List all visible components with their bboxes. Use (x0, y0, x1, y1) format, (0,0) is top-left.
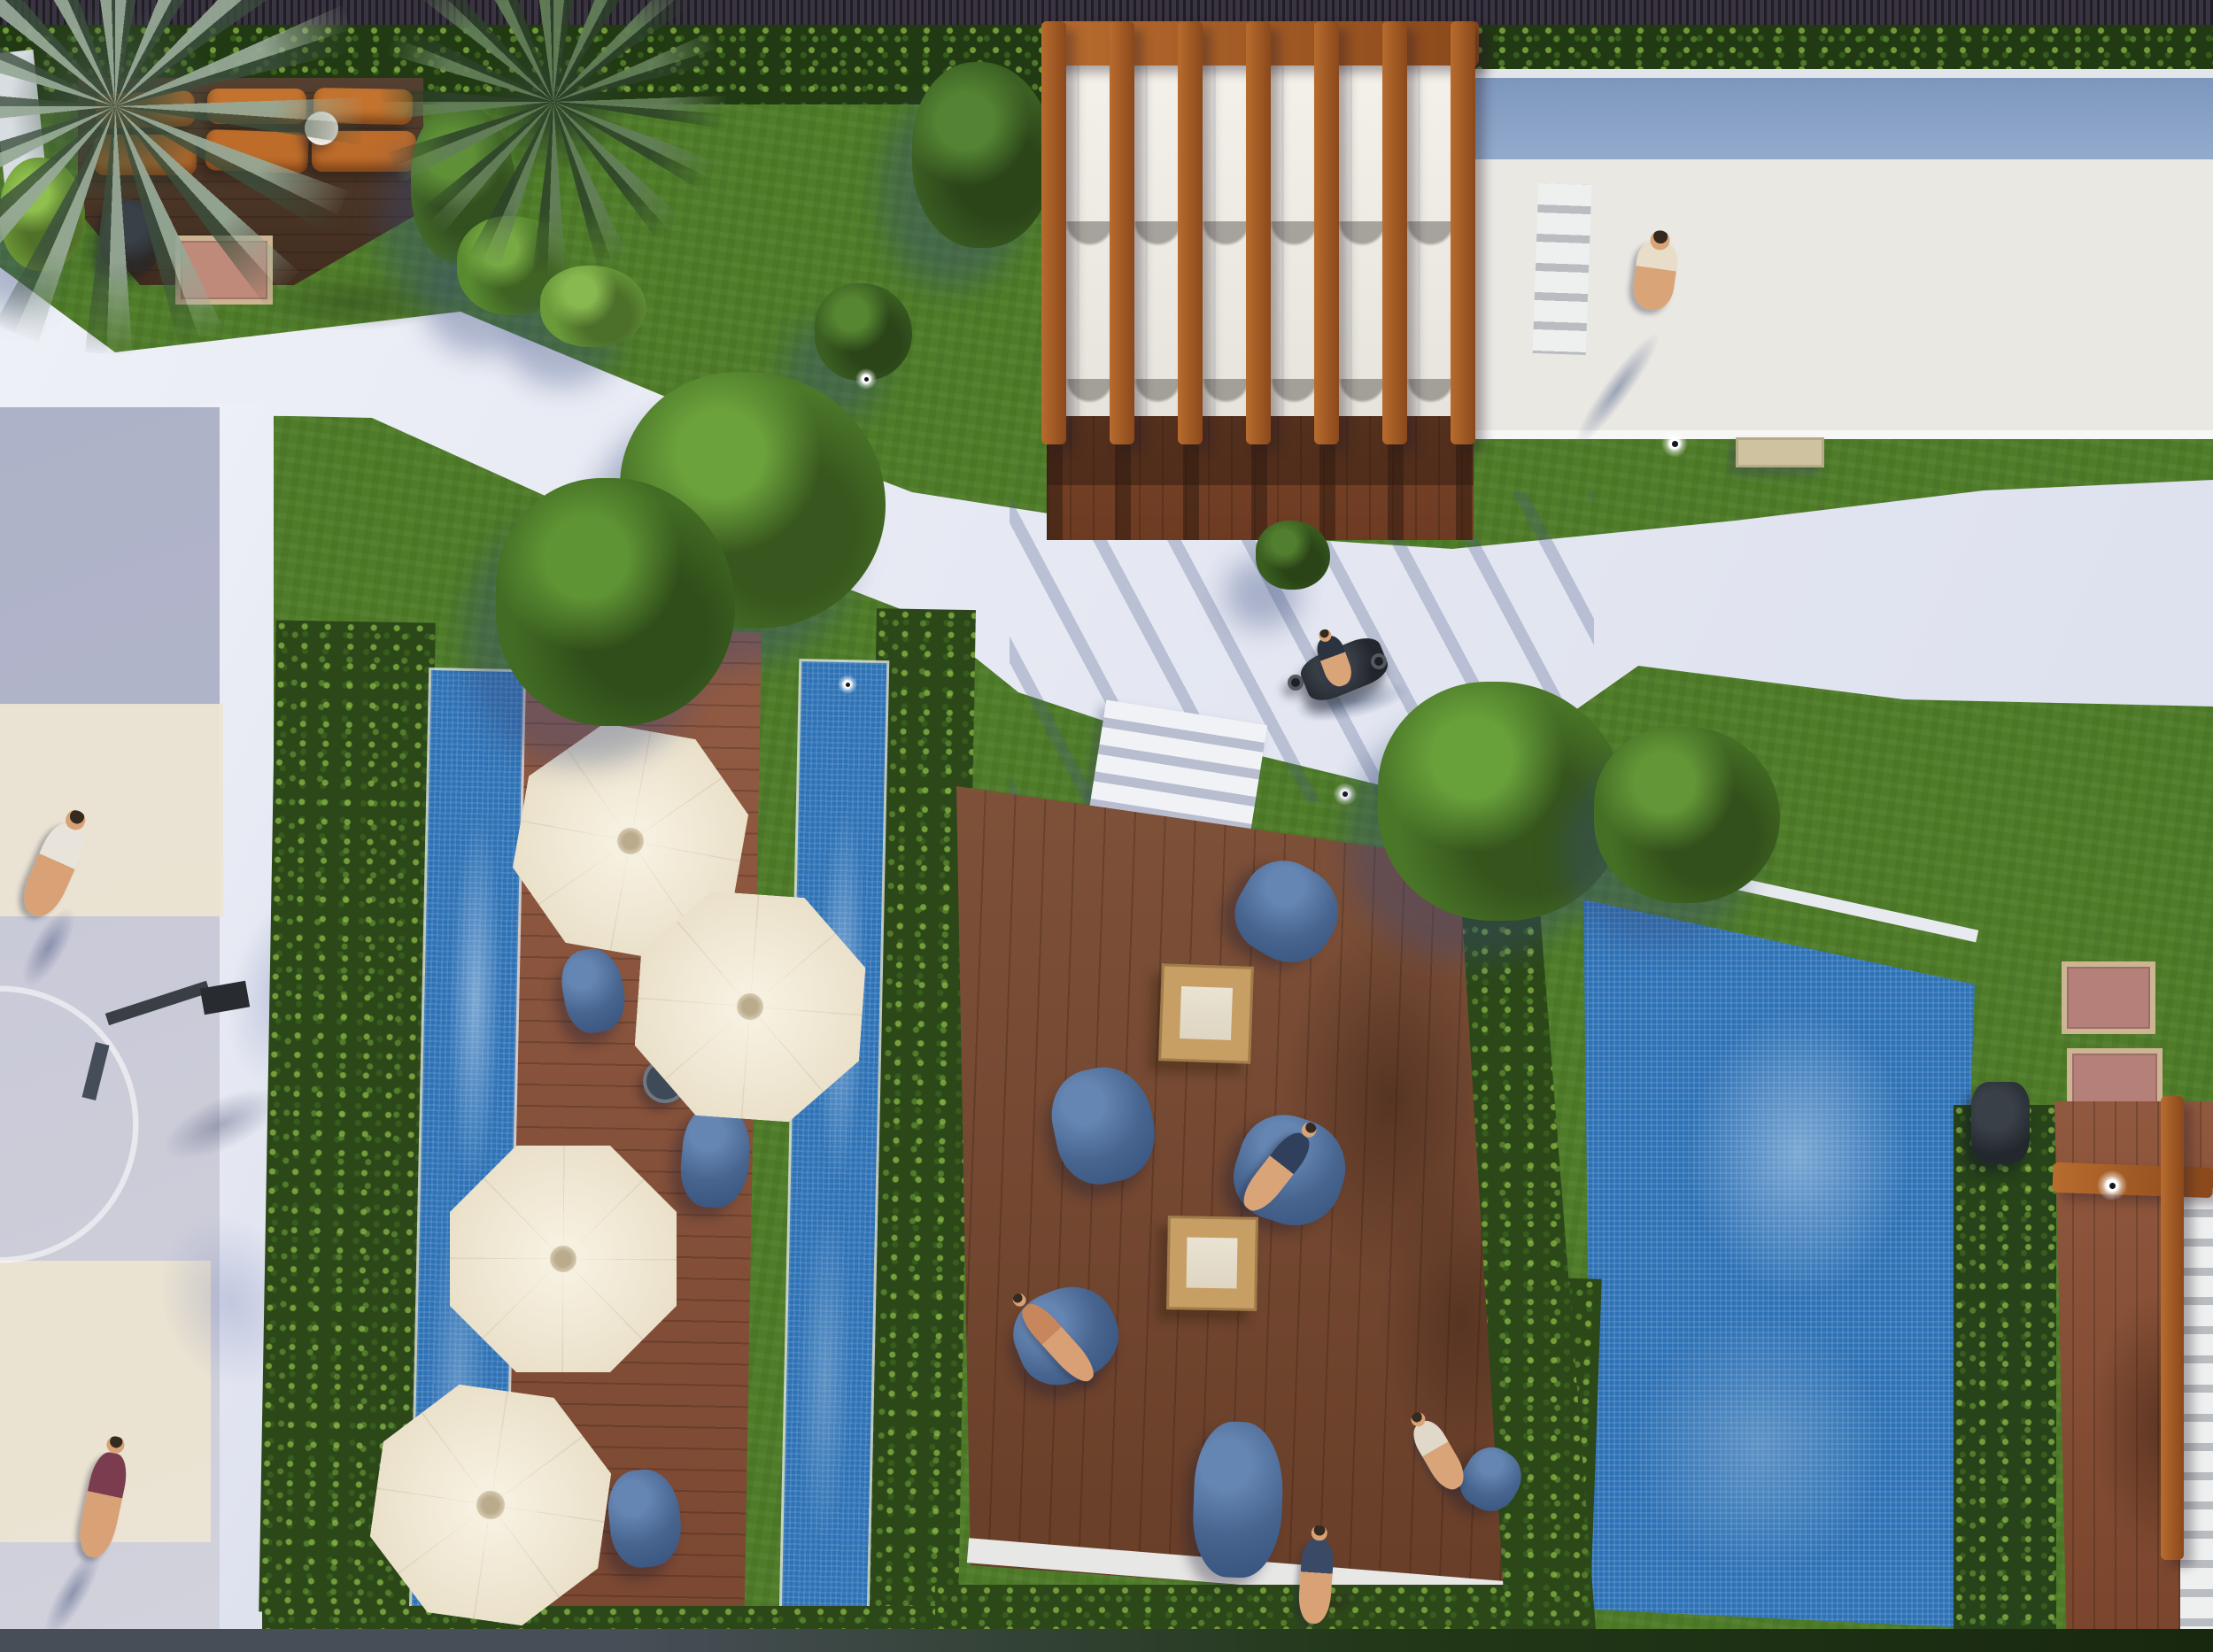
lawn-bench (1736, 437, 1824, 467)
pergola-beam-3 (1178, 21, 1203, 444)
pergola-beam-5 (1314, 21, 1339, 444)
tree-pool-right (1594, 726, 1780, 903)
pergola-br-lamp (2097, 1170, 2127, 1200)
scooter-wheel-front (1371, 653, 1387, 669)
pergola-beam-4 (1246, 21, 1271, 444)
deck-platform-2 (1166, 1216, 1258, 1311)
pergola-beam-6 (1382, 21, 1407, 444)
bush-mid-lawn (815, 283, 912, 381)
pergola-br-white-slats (2180, 1188, 2213, 1652)
bush-path-right (1256, 521, 1330, 590)
pergola-beam-7 (1451, 21, 1475, 444)
paver-lawn-1 (2062, 961, 2155, 1034)
pergola-br-beam-vertical (2161, 1096, 2184, 1560)
dark-lawn-strip (1954, 1105, 2056, 1652)
stairs-lamp (1334, 783, 1357, 806)
umbrella-3 (450, 1146, 677, 1372)
bottom-dark-strip (0, 1629, 2213, 1652)
scooter-wheel-rear (1288, 675, 1304, 691)
lawn-lamp (1661, 430, 1688, 457)
pergola-br-beam-horizontal (2052, 1162, 2213, 1198)
pergola-beam-2 (1110, 21, 1134, 444)
resort-aerial-render (0, 0, 2213, 1652)
bush-garden-3 (540, 266, 646, 347)
pool-bin (1971, 1082, 2030, 1163)
pergola-beam-1 (1041, 21, 1066, 444)
court-top-shade (0, 407, 220, 708)
terrace-sun-lounger (1533, 183, 1592, 355)
deck-platform-1 (1158, 963, 1254, 1064)
terrace-parapet-line (1468, 69, 2213, 78)
terrace-shaded-strip (1468, 78, 2213, 159)
lamp-mid-lawn (855, 368, 877, 390)
bush-pergola-left (912, 62, 1054, 248)
main-pool (1582, 896, 1977, 1631)
zone-lamp-2 (838, 675, 857, 694)
